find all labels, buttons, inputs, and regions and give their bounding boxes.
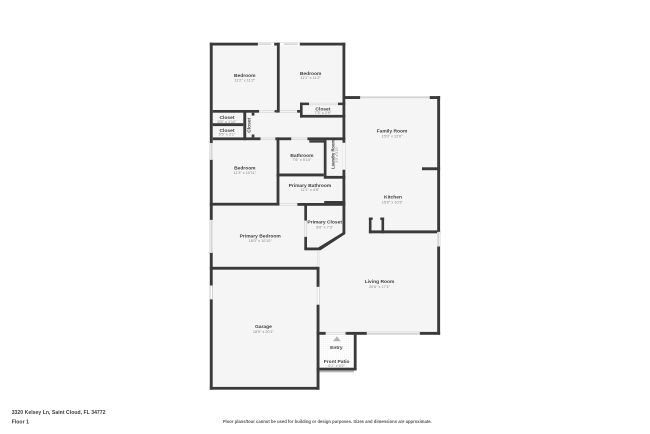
svg-text:20'6" x 17'1": 20'6" x 17'1" xyxy=(369,285,391,289)
svg-text:5'5" x 2'1": 5'5" x 2'1" xyxy=(219,133,236,137)
svg-text:15'9" x 10'3": 15'9" x 10'3" xyxy=(382,200,404,204)
svg-text:Closet: Closet xyxy=(246,117,252,132)
svg-text:5'5" x 1'10": 5'5" x 1'10" xyxy=(218,120,238,124)
svg-text:6'6" x 7'3": 6'6" x 7'3" xyxy=(316,225,333,229)
svg-text:Floor plans/tour cannot be use: Floor plans/tour cannot be used for buil… xyxy=(223,419,432,424)
svg-text:7'6" x 5'10": 7'6" x 5'10" xyxy=(292,158,312,162)
svg-text:Floor 1: Floor 1 xyxy=(12,420,29,426)
svg-text:11'3" x 10'11": 11'3" x 10'11" xyxy=(233,171,256,175)
svg-text:6'1" x 6'2": 6'1" x 6'2" xyxy=(328,364,345,368)
svg-text:7'3" x 2'9": 7'3" x 2'9" xyxy=(314,111,331,115)
svg-text:11'1" x 11'2": 11'1" x 11'2" xyxy=(300,76,321,80)
svg-text:3320 Kelsey Ln, Saint Cloud, F: 3320 Kelsey Ln, Saint Cloud, FL 34772 xyxy=(12,410,106,416)
svg-text:11'2" x 11'2": 11'2" x 11'2" xyxy=(234,78,255,82)
svg-text:11'1" x 4'8": 11'1" x 4'8" xyxy=(301,188,320,192)
svg-text:15'9" x 12'6": 15'9" x 12'6" xyxy=(381,134,403,138)
svg-text:Entry: Entry xyxy=(330,345,343,351)
svg-text:18'9" x 20'1": 18'9" x 20'1" xyxy=(253,330,275,334)
svg-text:18'0" x 10'10": 18'0" x 10'10" xyxy=(249,239,273,243)
svg-text:3'0" x 5'10": 3'0" x 5'10" xyxy=(335,146,339,163)
